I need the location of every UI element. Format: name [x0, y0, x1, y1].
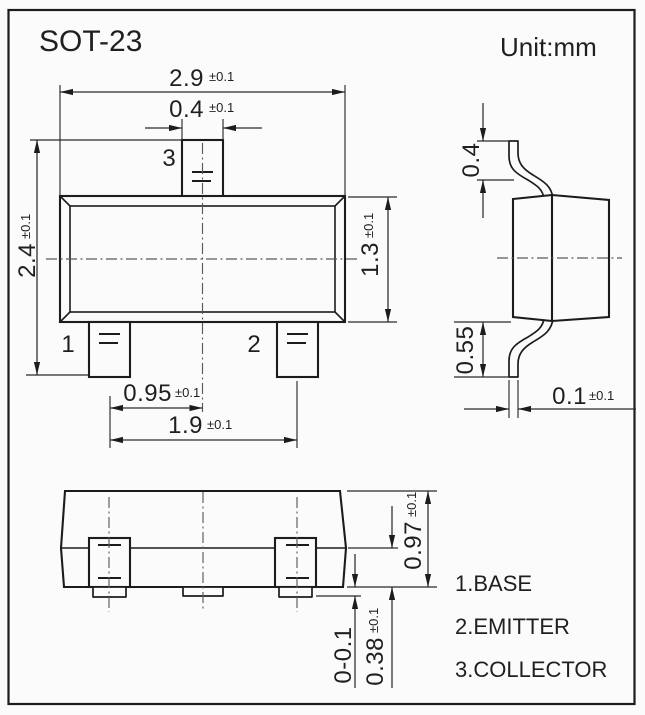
pin1-number: 1 — [61, 331, 74, 358]
pin2-lead — [277, 322, 318, 377]
dim-foot-height-value: 0.38 — [362, 637, 389, 686]
dim-foot-height-label: 0.38 ±0.1 — [362, 608, 389, 686]
pin2-foot — [279, 587, 312, 597]
dim-bottom-lead-value: 0.55 — [452, 326, 479, 375]
pin-legend: 1.BASE 2.EMITTER 3.COLLECTOR — [455, 571, 607, 682]
dim-bottom-lead-label: 0.55 — [452, 326, 479, 375]
dim-standoff-label: 0-0.1 — [330, 626, 357, 683]
dim-lead-thickness-value: 0.1 — [552, 383, 587, 410]
dim-lead-thickness-tol: ±0.1 — [589, 388, 614, 403]
dim-lead-offset-value: 0.95 — [123, 380, 172, 407]
pin1-lead — [89, 322, 130, 377]
dim-body-height-tol: ±0.1 — [361, 213, 376, 238]
pin2-number: 2 — [247, 331, 260, 358]
legend-item-collector: 3.COLLECTOR — [455, 657, 607, 682]
dim-body-width-value: 2.9 — [169, 65, 204, 92]
dim-lead-width-tol: ±0.1 — [209, 100, 234, 115]
drawing-sheet: SOT-23 Unit:mm 3 1 2 2.9 ±0.1 — [0, 0, 645, 715]
side-top-lead — [509, 141, 553, 199]
unit-label: Unit:mm — [500, 32, 597, 62]
dim-body-thickness-value: 0.97 — [400, 521, 427, 570]
sot23-outline-drawing: SOT-23 Unit:mm 3 1 2 2.9 ±0.1 — [0, 0, 645, 715]
dim-lead-pitch-value: 1.9 — [168, 412, 203, 439]
page-title: SOT-23 — [39, 25, 142, 58]
dim-top-lead-value: 0.4 — [458, 143, 485, 178]
side-view: 0.4 0.55 0.1 ±0.1 — [452, 103, 636, 418]
bottom-view: 0.97 ±0.1 0.38 ±0.1 0-0.1 — [61, 491, 437, 688]
dim-body-width-tol: ±0.1 — [209, 69, 234, 84]
front-view: 3 1 2 2.9 ±0.1 0.4 ±0.1 2.4 ±0.1 1.3 ±0.… — [14, 65, 397, 448]
dim-body-height-value: 1.3 — [357, 242, 384, 277]
dim-body-height-label: 1.3 ±0.1 — [357, 213, 384, 277]
dim-lead-pitch-tol: ±0.1 — [207, 417, 232, 432]
dim-top-lead-label: 0.4 — [458, 143, 485, 178]
legend-item-base: 1.BASE — [455, 571, 532, 596]
dim-total-height-tol: ±0.1 — [18, 214, 33, 239]
dim-total-height-value: 2.4 — [14, 243, 41, 278]
dim-foot-height-tol: ±0.1 — [366, 608, 381, 633]
dim-standoff-value: 0-0.1 — [330, 626, 357, 683]
pin3-number: 3 — [162, 145, 175, 172]
legend-item-emitter: 2.EMITTER — [455, 614, 570, 639]
dim-lead-width-value: 0.4 — [169, 96, 204, 123]
dim-body-thickness-label: 0.97 ±0.1 — [400, 492, 427, 570]
dim-body-thickness-tol: ±0.1 — [404, 492, 419, 517]
dim-lead-offset-tol: ±0.1 — [175, 385, 200, 400]
side-bottom-lead — [509, 318, 553, 377]
